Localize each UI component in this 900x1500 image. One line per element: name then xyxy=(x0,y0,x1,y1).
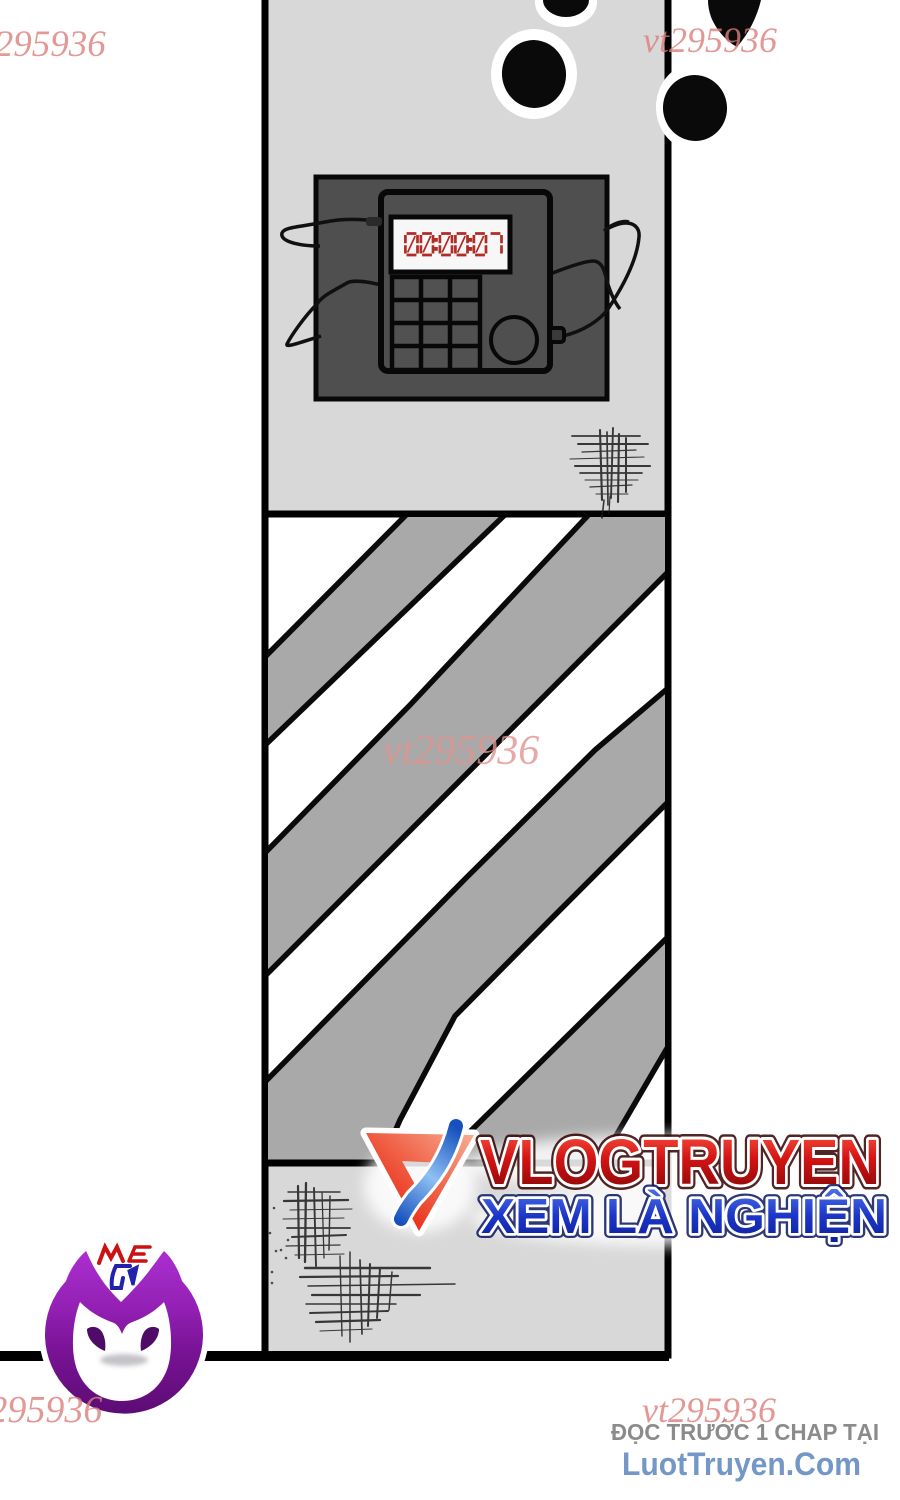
svg-text:vt295936: vt295936 xyxy=(0,1389,102,1431)
svg-text:VLOGTRUYEN: VLOGTRUYEN xyxy=(480,1126,880,1198)
svg-text:vt295936: vt295936 xyxy=(643,20,777,60)
svg-text:XEM LÀ NGHIỆN: XEM LÀ NGHIỆN xyxy=(481,1189,887,1244)
svg-text:vt295936: vt295936 xyxy=(0,24,106,65)
svg-text:vt295936: vt295936 xyxy=(383,728,539,774)
svg-text:vt295936: vt295936 xyxy=(642,1390,776,1430)
svg-text:LuotTruyen.Com: LuotTruyen.Com xyxy=(622,1446,861,1482)
